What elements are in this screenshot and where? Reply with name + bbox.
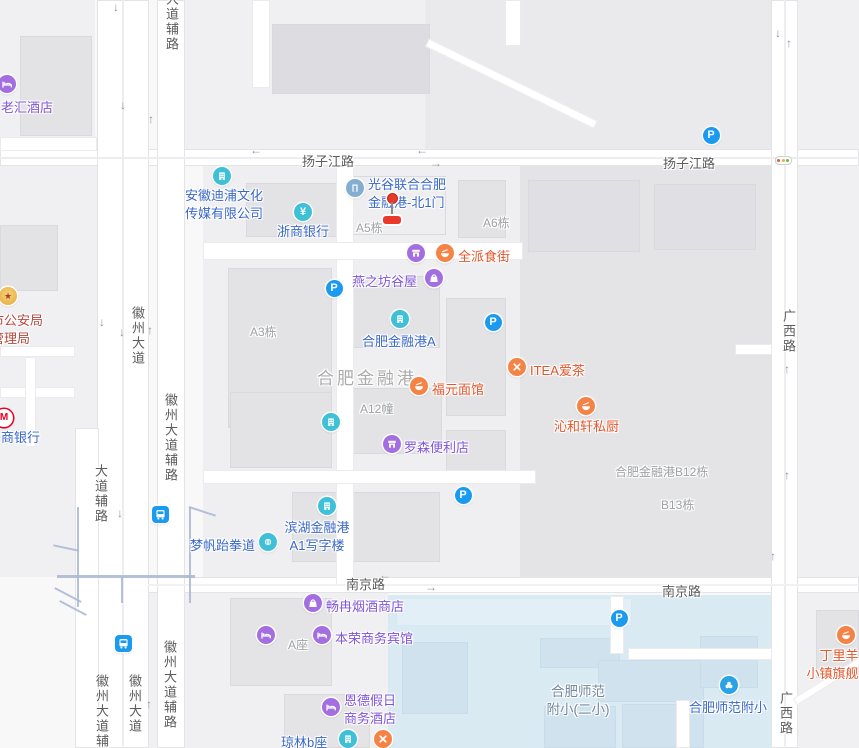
bag-icon bbox=[425, 269, 443, 287]
store-icon bbox=[383, 435, 401, 453]
poi-label: A1写字楼 bbox=[290, 535, 345, 554]
bag-icon bbox=[304, 594, 322, 612]
bowl-icon bbox=[577, 397, 595, 415]
oneway-arrow-icon: ↑ bbox=[770, 549, 776, 563]
oneway-arrow-icon: ↓ bbox=[120, 98, 126, 112]
poi-label: 燕之坊谷屋 bbox=[352, 271, 417, 290]
road-label: 南京路 bbox=[346, 574, 385, 593]
bed-icon bbox=[257, 626, 275, 644]
road-internal-south bbox=[203, 470, 536, 484]
poi-label: 安徽迪浦文化 bbox=[185, 185, 263, 204]
bowl-icon bbox=[410, 377, 428, 395]
oneway-arrow-icon: ↑ bbox=[786, 36, 792, 50]
road-label: 徽州大道 bbox=[125, 674, 144, 734]
road-west-grid bbox=[0, 346, 75, 357]
path-line bbox=[189, 507, 191, 603]
traffic-light-icon bbox=[775, 156, 792, 165]
road-campus-path bbox=[676, 700, 690, 748]
poi-label: 浙商银行 bbox=[277, 221, 329, 240]
parking-icon[interactable]: P bbox=[455, 487, 472, 504]
road-label: 扬子江路 bbox=[302, 151, 354, 170]
poi-label: 商务酒店 bbox=[344, 708, 396, 727]
bed-icon bbox=[322, 698, 340, 716]
road-median bbox=[148, 584, 859, 586]
road-label: 南京路 bbox=[662, 581, 701, 600]
poi-label: 市公安局 bbox=[0, 310, 43, 329]
poi-label: 小镇旗舰店 bbox=[806, 663, 859, 682]
bed-icon bbox=[313, 626, 331, 644]
poi-label: 沁和轩私厨 bbox=[554, 416, 619, 435]
building bbox=[272, 24, 430, 94]
school-building bbox=[396, 598, 632, 626]
oneway-arrow-icon: → bbox=[425, 580, 437, 594]
door-icon bbox=[346, 179, 364, 197]
yen-icon: ¥ bbox=[294, 203, 312, 221]
oneway-arrow-icon: ↓ bbox=[119, 325, 125, 339]
store-icon bbox=[407, 244, 425, 262]
poi-label: 传媒有限公司 bbox=[185, 203, 263, 222]
road-driveway-east bbox=[735, 344, 772, 355]
road-label: 广西路 bbox=[776, 691, 795, 736]
oneway-arrow-icon: ← bbox=[250, 143, 262, 157]
utensils-icon bbox=[374, 730, 392, 748]
poi-label: 合肥金融港A bbox=[362, 331, 436, 350]
building-label: A6栋 bbox=[483, 214, 510, 231]
road-label: 徽州大道辅路 bbox=[161, 393, 180, 483]
building bbox=[528, 180, 640, 252]
oneway-arrow-icon: ← bbox=[416, 143, 428, 157]
parking-icon[interactable]: P bbox=[703, 127, 720, 144]
parking-icon[interactable]: P bbox=[485, 314, 502, 331]
path-line bbox=[121, 577, 123, 603]
oneway-arrow-icon: ↓ bbox=[113, 0, 119, 14]
building bbox=[654, 184, 756, 250]
poi-label: 恩德假日 bbox=[344, 690, 396, 709]
poi-label: 金融港-北1门 bbox=[368, 192, 445, 211]
oneway-arrow-icon: ↑ bbox=[784, 362, 790, 376]
poi-label: 丁里羊 bbox=[819, 645, 858, 664]
fist-icon bbox=[259, 533, 277, 551]
oneway-arrow-icon: ↑ bbox=[146, 697, 152, 711]
road-campus-path bbox=[628, 648, 772, 660]
area-label-school: 合肥师范 bbox=[551, 680, 605, 700]
building-label: B13栋 bbox=[661, 496, 694, 513]
school-building bbox=[402, 642, 468, 714]
poi-label: 本荣商务宾馆 bbox=[335, 628, 413, 647]
poi-label: 罗森便利店 bbox=[404, 437, 469, 456]
parking-icon[interactable]: P bbox=[611, 610, 628, 627]
utensils-icon bbox=[508, 358, 526, 376]
school-icon bbox=[720, 676, 738, 694]
building bbox=[20, 36, 92, 136]
poi-label: 合肥师范附小 bbox=[689, 697, 767, 716]
road-west-grid bbox=[0, 387, 75, 398]
map-canvas[interactable]: 老汇酒店安徽迪浦文化传媒有限公司¥浙商银行光谷联合合肥金融港-北1门7TT鲜食便… bbox=[0, 0, 859, 748]
poi-label: 管理局 bbox=[0, 328, 30, 347]
building-icon bbox=[322, 413, 340, 431]
poi-label: 滨湖金融港 bbox=[284, 517, 349, 536]
road-nw-connector bbox=[0, 137, 97, 151]
road-huizhou-frontage-east bbox=[157, 0, 185, 748]
road-label: 广西路 bbox=[779, 309, 798, 354]
oneway-arrow-icon: ↑ bbox=[147, 323, 153, 337]
building-label: A3栋 bbox=[250, 323, 277, 340]
area-label-school: 附小(二小) bbox=[547, 698, 610, 718]
oneway-arrow-icon: ↓ bbox=[775, 26, 781, 40]
area-label-jinronggang: 合肥金融港 bbox=[317, 364, 417, 389]
block-northeast bbox=[425, 0, 771, 149]
road-top-center-stub bbox=[252, 0, 270, 88]
oneway-arrow-icon: ↑ bbox=[148, 112, 154, 126]
block-east bbox=[798, 166, 859, 577]
poi-label: 畅冉烟酒商店 bbox=[326, 596, 404, 615]
road-label: 徽州大道辅路 bbox=[160, 640, 179, 730]
parking-icon[interactable]: P bbox=[326, 280, 343, 297]
building-icon bbox=[213, 167, 231, 185]
building-label: 合肥金融港B12栋 bbox=[615, 463, 708, 480]
poi-label: 福元面馆 bbox=[432, 379, 484, 398]
block-northeast-far bbox=[798, 0, 859, 149]
poi-label: 全派食街 bbox=[458, 246, 510, 265]
path-line bbox=[77, 507, 79, 607]
poi-label: ITEA爱茶 bbox=[530, 360, 585, 379]
bowl-icon bbox=[436, 244, 454, 262]
oneway-arrow-icon: ↓ bbox=[117, 506, 123, 520]
road-label: 徽州大道 bbox=[128, 306, 147, 366]
poi-label: 商银行 bbox=[1, 427, 40, 446]
building-icon bbox=[391, 310, 409, 328]
building-a2 bbox=[230, 392, 332, 468]
bus-station-icon[interactable] bbox=[115, 635, 132, 652]
building-label: A12幢 bbox=[360, 400, 393, 417]
school-building bbox=[598, 660, 704, 702]
oneway-arrow-icon: ↓ bbox=[99, 315, 105, 329]
poi-label: 琼林b座 bbox=[281, 732, 327, 748]
poi-label: 梦帆跆拳道 bbox=[190, 535, 255, 554]
path-line bbox=[57, 575, 195, 578]
road-label: 大道辅路 bbox=[91, 464, 110, 524]
poi-label: 老汇酒店 bbox=[1, 97, 53, 116]
road-label: 大道辅路 bbox=[162, 0, 181, 52]
building-label: A5栋 bbox=[356, 219, 383, 236]
road-top-stub bbox=[505, 0, 521, 46]
bowl-icon bbox=[837, 626, 855, 644]
building-label: A座 bbox=[288, 636, 308, 653]
oneway-arrow-icon: → bbox=[430, 156, 442, 170]
road-label: 扬子江路 bbox=[663, 153, 715, 172]
road-label: 徽州大道辅路 bbox=[92, 674, 111, 748]
bus-station-icon[interactable] bbox=[152, 506, 169, 523]
building-icon bbox=[339, 730, 357, 748]
building-icon bbox=[318, 497, 336, 515]
building-police bbox=[0, 225, 58, 291]
oneway-arrow-icon: ↑ bbox=[784, 468, 790, 482]
poi-label: 光谷联合合肥 bbox=[368, 174, 446, 193]
